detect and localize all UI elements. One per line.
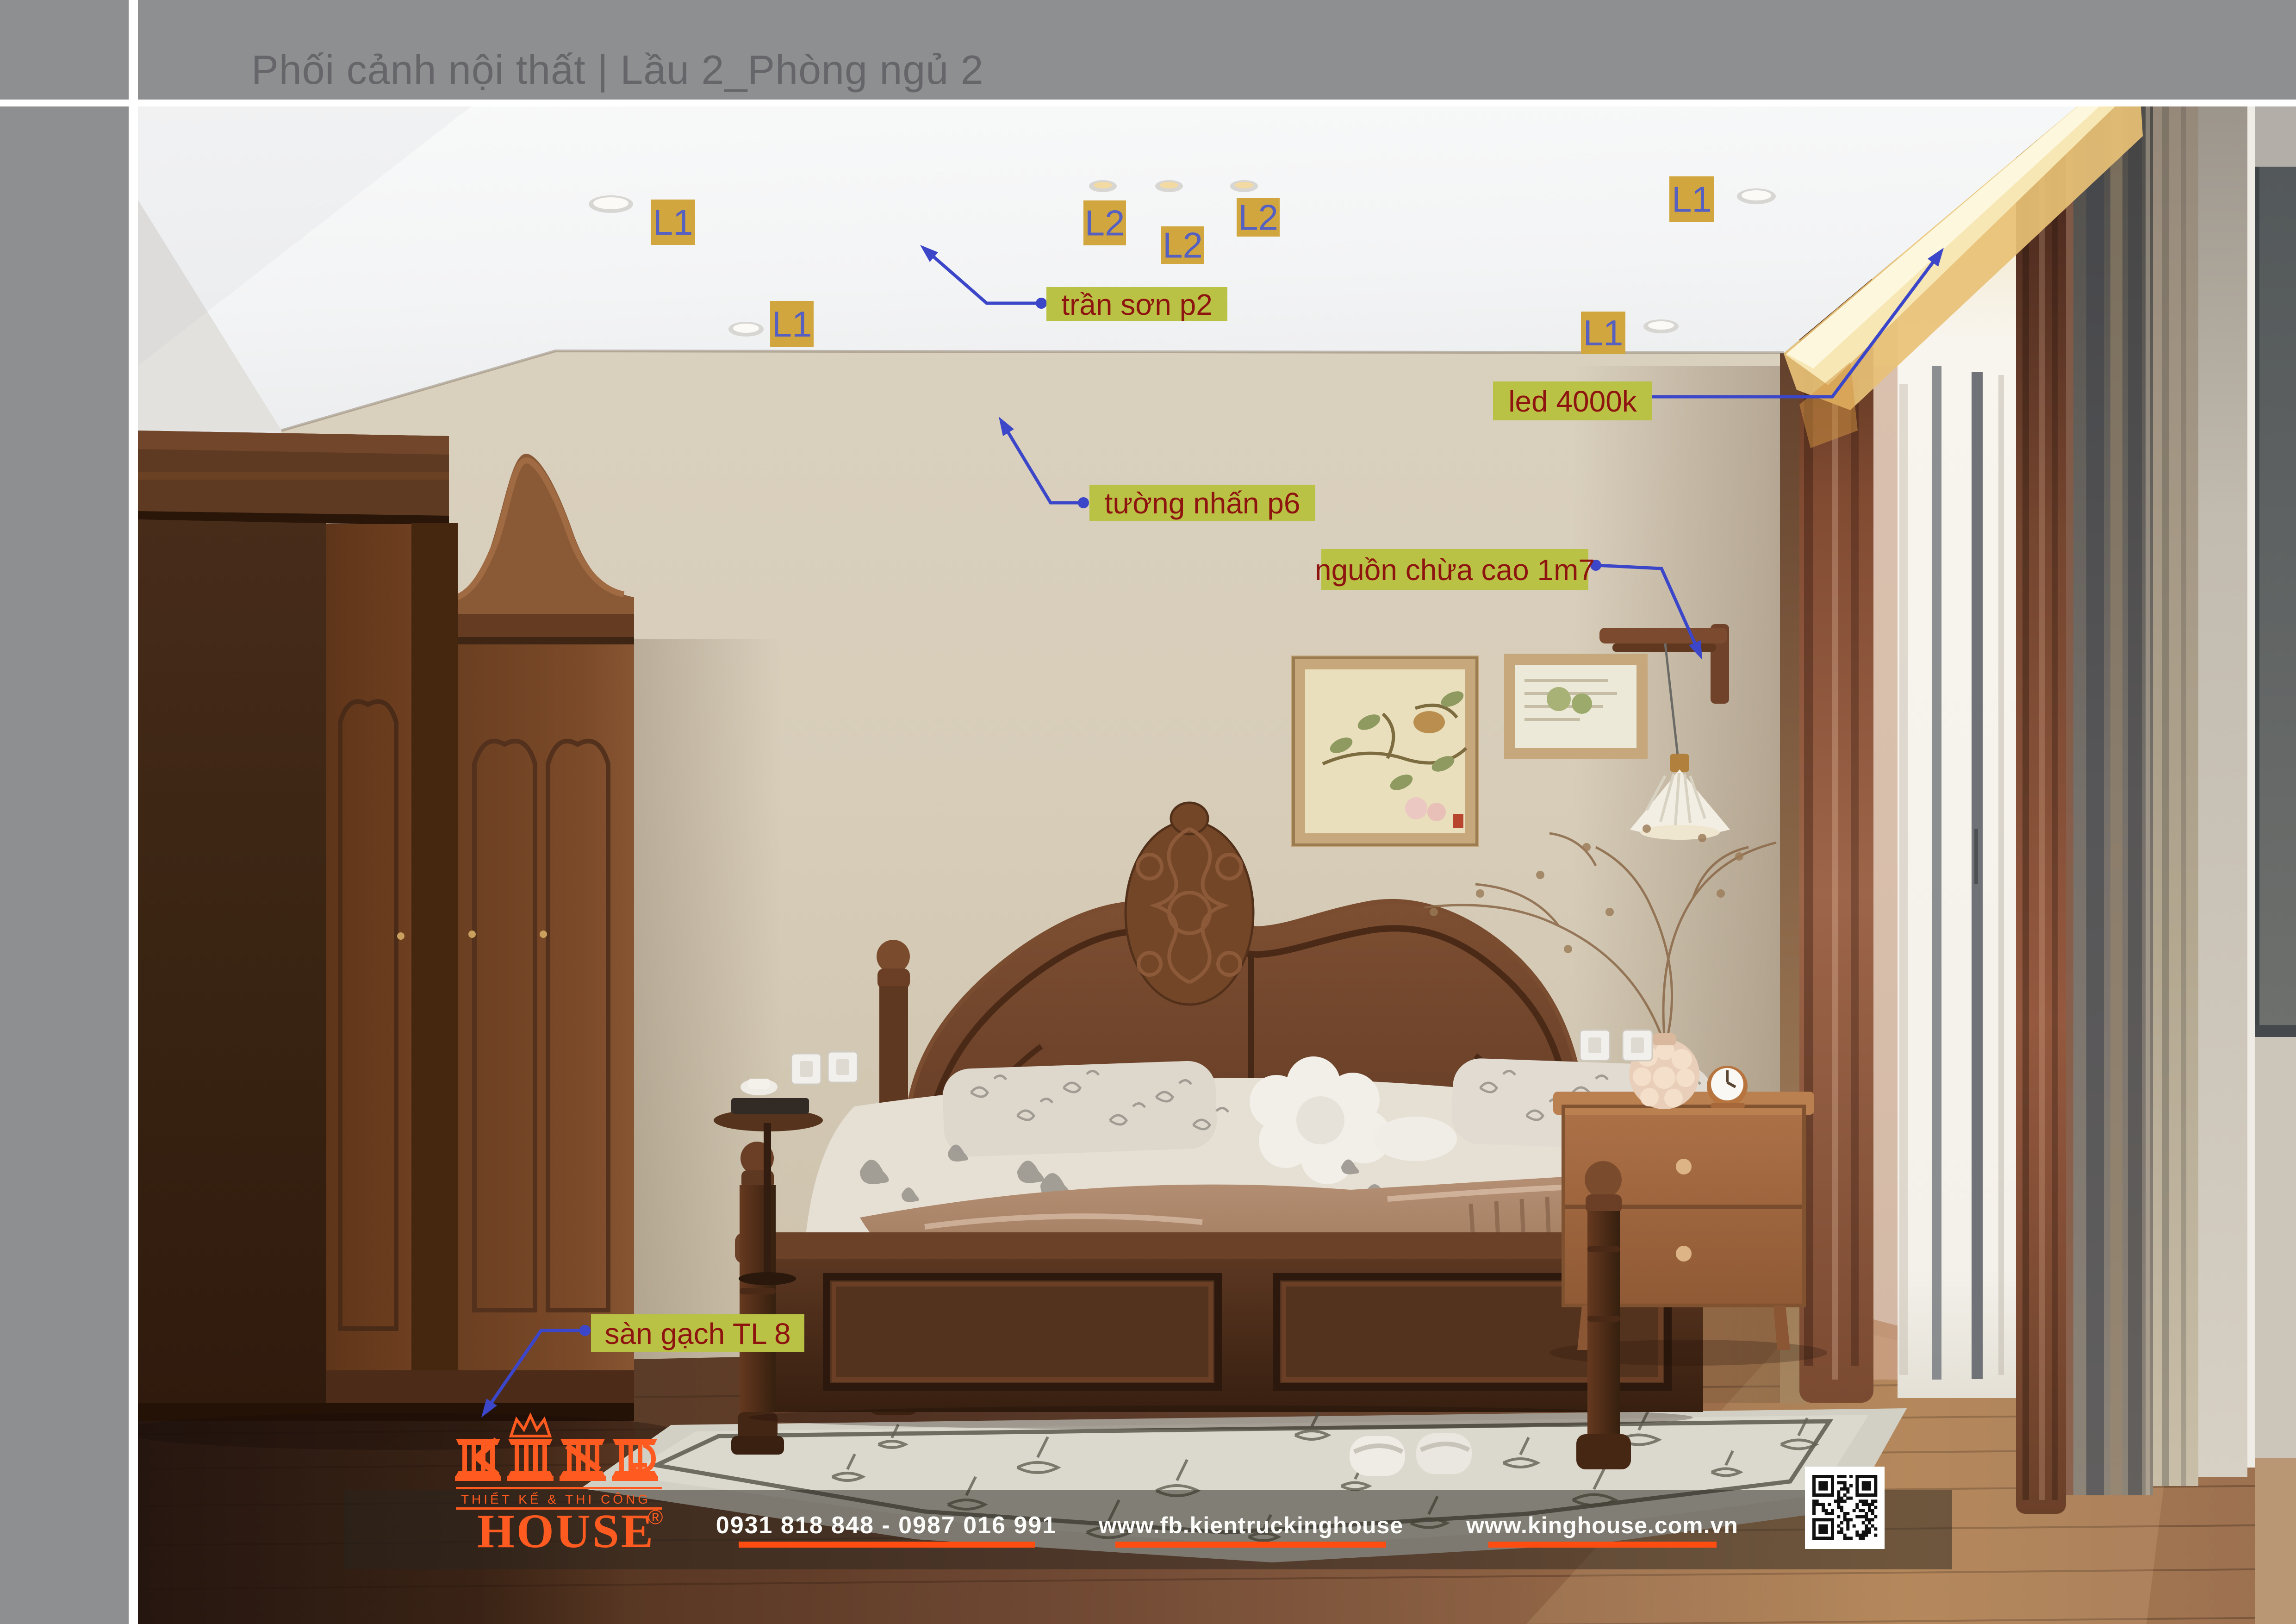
svg-text:tường nhấn p6: tường nhấn p6 [1105,487,1300,520]
svg-text:trần sơn p2: trần sơn p2 [1061,288,1213,321]
svg-text:nguồn chừa cao 1m7: nguồn chừa cao 1m7 [1315,553,1595,587]
svg-text:www.kinghouse.com.vn: www.kinghouse.com.vn [1466,1512,1738,1538]
svg-text:L1: L1 [772,304,812,344]
svg-text:L1: L1 [1672,179,1712,220]
svg-text:L2: L2 [1085,203,1125,244]
svg-text:L2: L2 [1238,197,1278,238]
svg-text:sàn gạch TL 8: sàn gạch TL 8 [604,1317,790,1350]
svg-text:L2: L2 [1163,225,1203,266]
svg-text:®: ® [648,1506,663,1529]
svg-text:L1: L1 [653,202,693,243]
svg-text:0931 818 848 - 0987 016 991: 0931 818 848 - 0987 016 991 [716,1512,1057,1539]
svg-text:www.fb.kientruckinghouse: www.fb.kientruckinghouse [1098,1512,1403,1538]
svg-text:L1: L1 [1583,312,1624,353]
svg-text:led 4000k: led 4000k [1508,385,1637,418]
svg-text:HOUSE: HOUSE [477,1505,655,1558]
